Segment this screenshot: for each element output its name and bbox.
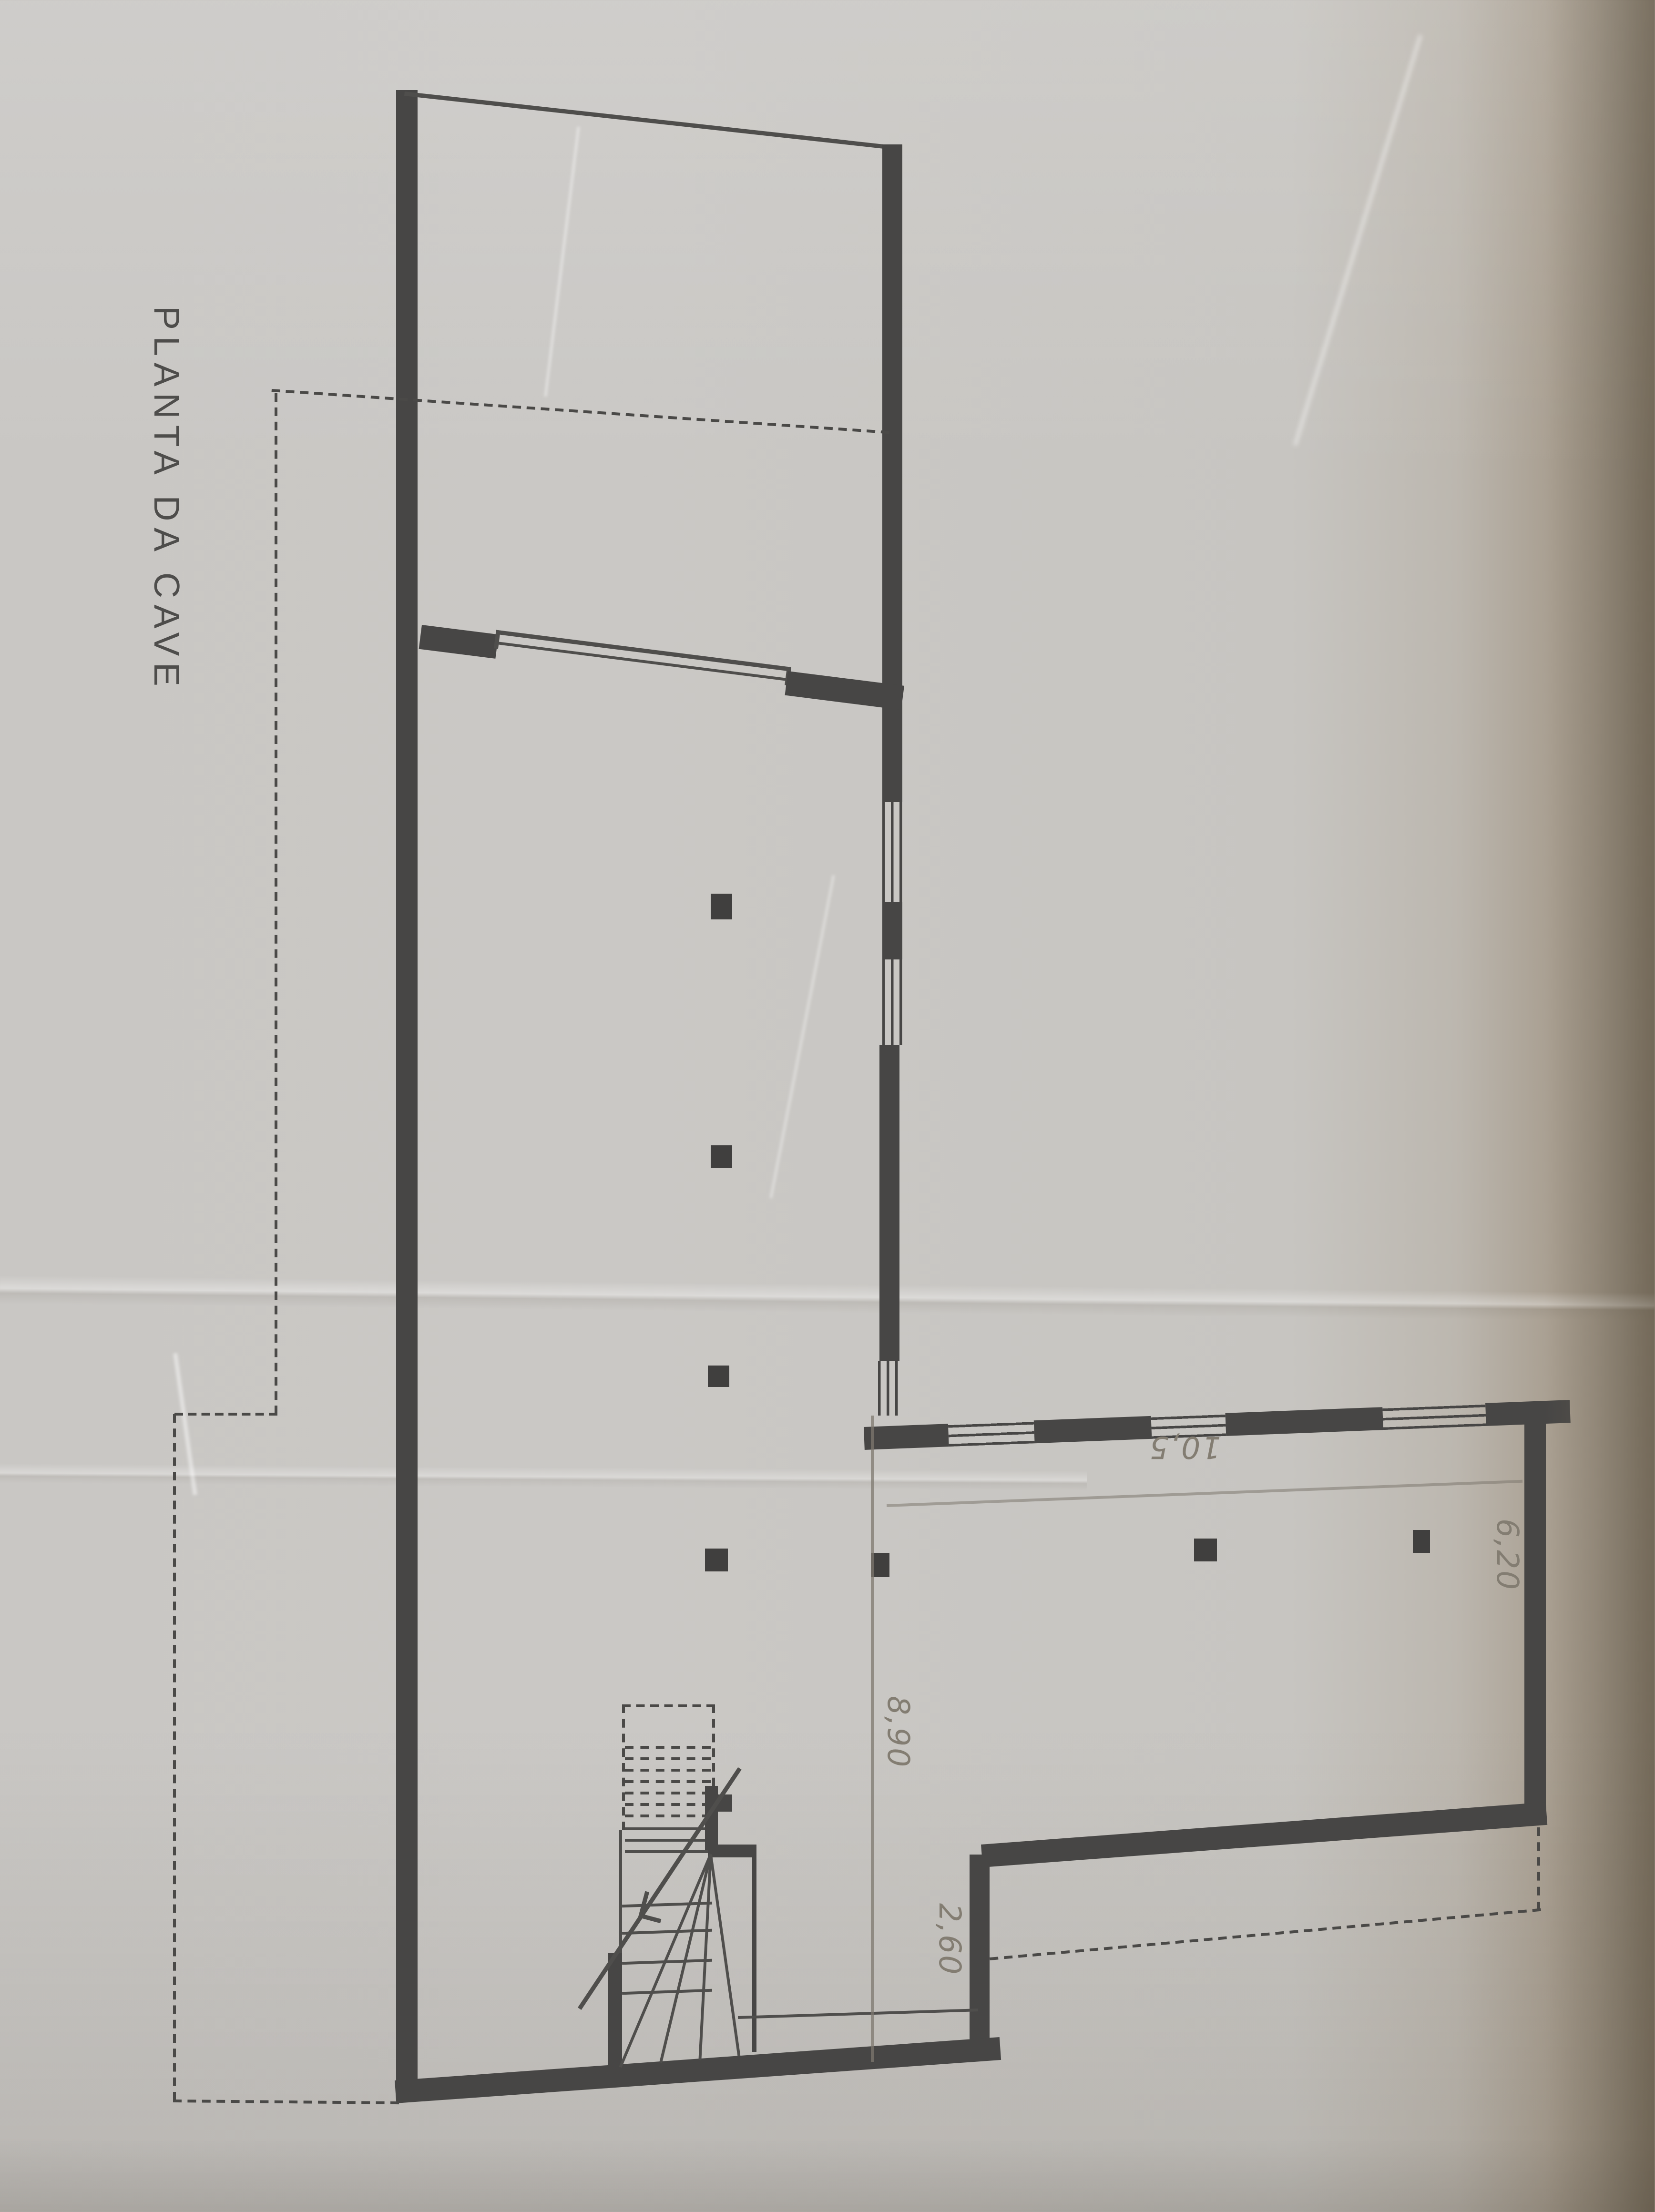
window-wing-1 (948, 1420, 1035, 1447)
wall-interior-divider (419, 625, 904, 710)
wall-bottom-bar (395, 2037, 1001, 2103)
photo-edge-shadow (1544, 0, 1655, 2212)
stair-tread-lower (622, 1989, 712, 1995)
window-right-2 (882, 959, 902, 1045)
column (1194, 1539, 1217, 1561)
floor-plan-drawing: 8,90 2,60 10,5 6,20 (0, 0, 1655, 2212)
dimension-label: 10,5 (1148, 1430, 1221, 1464)
wall-bottom-exterior (395, 2037, 1001, 2103)
stair-wall-corner-v (752, 1857, 756, 2052)
wall-wing-bottom (981, 1802, 1547, 1867)
column (711, 1145, 732, 1168)
dimension-label: 8,90 (881, 1696, 915, 1768)
stair-dashed-enclosure (622, 1704, 625, 1830)
boundary-dashed-left-upper (275, 393, 277, 1414)
stair-wall-corner-h (708, 1845, 756, 1857)
wall-wing-right (1524, 1413, 1546, 1822)
wall-right-lower (879, 1045, 899, 1361)
wall-wing-bottom-bar (981, 1802, 1547, 1867)
wall-top-thin-line (404, 92, 899, 151)
wing-sill-line (887, 1480, 1522, 1507)
window-wing-3 (1382, 1403, 1486, 1430)
stair-tread-dashed (625, 1746, 711, 1749)
window-right-3 (878, 1361, 898, 1416)
dimension-label: 6,20 (1490, 1519, 1524, 1591)
recess-dashed-h (990, 1908, 1541, 1960)
wall-wing-top-segment (1225, 1407, 1383, 1436)
door-jamb (494, 630, 501, 649)
stair-tread (625, 1839, 711, 1842)
stair-tread-dashed (625, 1757, 711, 1760)
stair-winder-line (709, 1855, 740, 2056)
stair-tread-lower (622, 1929, 712, 1935)
pencil-guide-line (871, 1416, 873, 2062)
column (708, 1366, 729, 1387)
recess-dashed-v (1537, 1827, 1540, 1910)
stair-landing-line (738, 2008, 978, 2019)
column (711, 894, 732, 919)
window-right-1 (882, 802, 902, 902)
boundary-dashed-bottom (173, 2100, 399, 2104)
column (1413, 1530, 1430, 1553)
column (871, 1553, 889, 1577)
door-opening-line (496, 630, 791, 671)
stair-tread-dashed (625, 1803, 711, 1806)
wall-interior-segment (419, 625, 499, 659)
stair-tread-dashed (625, 1814, 711, 1817)
stair-side-line (619, 1830, 622, 1956)
boundary-dashed-top (272, 389, 889, 434)
photo-bottom-shadow (0, 2138, 1655, 2212)
wall-wing-top-segment (1034, 1416, 1152, 1443)
stair-tread-dashed (625, 1792, 711, 1794)
stair-tread-dashed (625, 1769, 711, 1772)
stair-tread-dashed (625, 1780, 711, 1783)
wall-left-exterior (396, 90, 418, 2092)
boundary-dashed-left-lower (173, 1414, 176, 2100)
scanned-floor-plan-page: PLANTA DA CAVE (0, 0, 1655, 2212)
stair-tread (625, 1850, 711, 1853)
stair-winder-line (698, 1855, 712, 2060)
wall-right-pier (882, 902, 902, 959)
wall-wing-top-segment (864, 1424, 949, 1450)
stair-dashed-enclosure (622, 1704, 715, 1707)
column (705, 1549, 728, 1571)
boundary-dashed-jog (174, 1413, 277, 1416)
wall-recess (970, 1855, 990, 2050)
dimension-label: 2,60 (932, 1903, 967, 1976)
stair-wall-left (608, 1953, 622, 2073)
